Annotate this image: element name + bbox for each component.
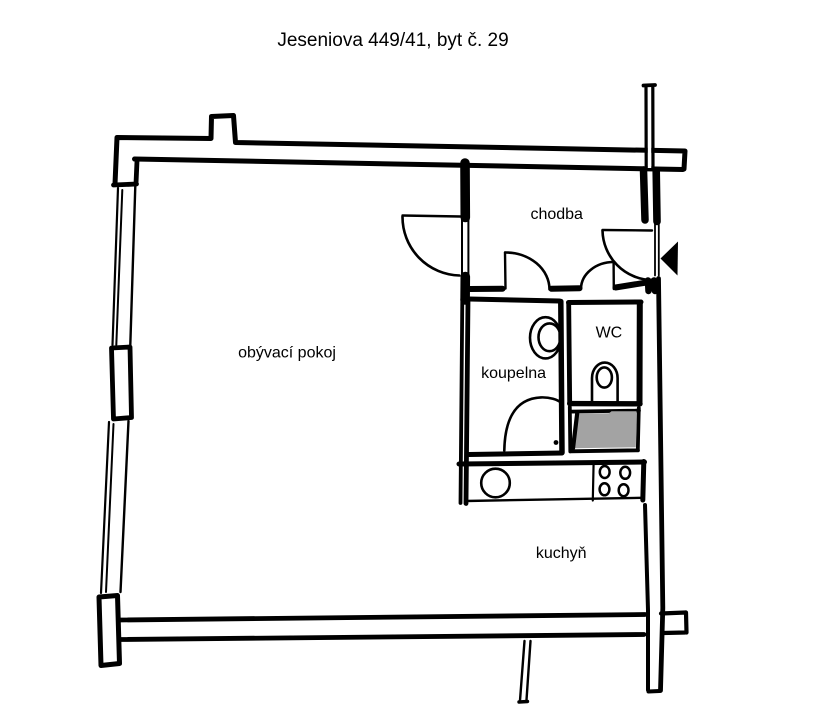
svg-text:WC: WC [596, 325, 623, 342]
svg-text:obývací pokoj: obývací pokoj [238, 344, 336, 361]
svg-text:kuchyň: kuchyň [536, 545, 587, 562]
svg-text:Jeseniova 449/41, byt č. 29: Jeseniova 449/41, byt č. 29 [277, 30, 508, 51]
svg-text:chodba: chodba [530, 206, 583, 223]
svg-text:koupelna: koupelna [481, 365, 546, 382]
